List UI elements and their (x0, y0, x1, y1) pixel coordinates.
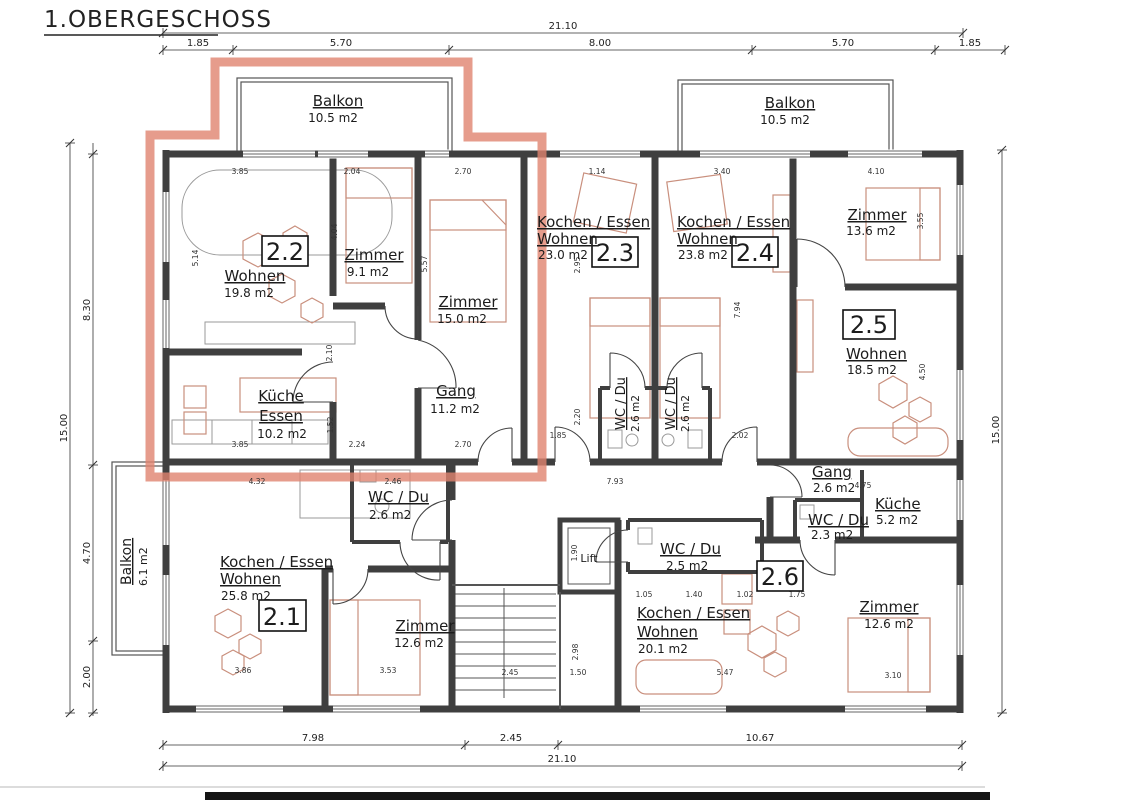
room-name2-ke-23: Wohnen (537, 230, 598, 248)
dim-bottom-total: 21.10 (548, 754, 577, 765)
dim-bottom-seg: 10.67 (746, 733, 775, 744)
dim-top-seg: 5.70 (832, 38, 854, 49)
room-name-wcdu-21: WC / Du (368, 488, 429, 506)
minor-dimension: 3.10 (885, 671, 902, 680)
minor-dimension: 4.75 (855, 481, 872, 490)
minor-dimension: 2.20 (573, 408, 582, 425)
room-name-gang-22: Gang (436, 382, 476, 400)
room-name-wcdu-25: WC / Du (808, 511, 869, 529)
window (760, 150, 810, 159)
unit-number-2-4: 2.4 (736, 239, 774, 267)
minor-dimension: 1.14 (589, 167, 606, 176)
dim-top-seg: 1.85 (187, 38, 209, 49)
room-area-zimmer-21: 12.6 m2 (394, 636, 444, 650)
minor-dimension: 3.53 (380, 666, 397, 675)
unit-number-2-2: 2.2 (266, 238, 304, 266)
room-area-wohnen-22: 19.8 m2 (224, 286, 274, 300)
dim-bottom-seg: 7.98 (302, 733, 324, 744)
room-area-ke-23: 23.0 m2 (538, 248, 588, 262)
dim-right-total: 15.00 (991, 416, 1002, 445)
room-name-zimmer-21: Zimmer (395, 617, 455, 635)
scan-black-bar (205, 792, 990, 800)
minor-dimension: 2.98 (571, 643, 580, 660)
room-area-wcdu-23: 2.6 m2 (630, 395, 642, 432)
room-area-balkon-21: 6.1 m2 (137, 547, 150, 586)
room-name-wcdu-23: WC / Du (614, 377, 629, 430)
minor-dimension: 7.94 (733, 301, 742, 318)
room-name-wohnen-22: Wohnen (225, 267, 286, 285)
floor-plan-page: 1.OBERGESCHOSS (0, 0, 1132, 800)
dim-top-total: 21.10 (549, 21, 578, 32)
minor-dimension: 2.10 (325, 344, 334, 361)
minor-dimension: 1.02 (737, 590, 754, 599)
minor-dimension: 4.10 (868, 167, 885, 176)
room-area-wcdu-24: 2.6 m2 (680, 395, 692, 432)
room-name2-kueche-22: Essen (259, 407, 303, 425)
room-area-balkon-22: 10.5 m2 (308, 111, 358, 125)
minor-dimension: 3.55 (916, 212, 925, 229)
dim-top-seg: 8.00 (589, 38, 611, 49)
minor-dimension: 3.85 (232, 167, 249, 176)
dim-bottom-seg: 2.45 (500, 733, 522, 744)
dim-left-seg: 8.30 (82, 299, 93, 321)
window (243, 150, 315, 159)
minor-dimension: 2.24 (349, 440, 366, 449)
dim-left-seg: 4.70 (82, 542, 93, 564)
room-area-gang-25: 2.6 m2 (813, 481, 855, 495)
room-name-ke-26: Kochen / Essen (637, 604, 750, 622)
minor-dimension: 1.52 (326, 416, 335, 433)
plants-2-6 (748, 611, 799, 677)
minor-dimension: 1.40 (686, 590, 703, 599)
room-name-balkon-21: Balkon (119, 538, 135, 585)
window (956, 585, 965, 655)
room-name-wcdu-26: WC / Du (660, 540, 721, 558)
room-name-ke-21: Kochen / Essen (220, 553, 333, 571)
room-area-balkon-right: 10.5 m2 (760, 113, 810, 127)
room-area-kueche-22: 10.2 m2 (257, 427, 307, 441)
unit-number-2-5: 2.5 (850, 311, 888, 339)
room-name2-ke-24: Wohnen (677, 230, 738, 248)
room-area-ke-24: 23.8 m2 (678, 248, 728, 262)
room-area-wcdu-25: 2.3 m2 (811, 528, 853, 542)
room-name-zimmer-26: Zimmer (859, 598, 919, 616)
minor-dimension: 1.50 (570, 668, 587, 677)
room-area-gang-22: 11.2 m2 (430, 402, 480, 416)
minor-dimension: 3.40 (714, 167, 731, 176)
window (956, 185, 965, 255)
room-area-wohnen-25: 18.5 m2 (847, 363, 897, 377)
room-name-wohnen-25: Wohnen (846, 345, 907, 363)
window (700, 150, 768, 159)
minor-dimension: 2.46 (385, 477, 402, 486)
minor-dimension: 2.04 (344, 167, 361, 176)
minor-dimension: 2.70 (455, 167, 472, 176)
unit-badges: 2.1 2.2 2.3 2.4 2.5 2.6 (259, 236, 895, 631)
minor-dimension: 3.85 (232, 440, 249, 449)
dim-left-seg: 2.00 (82, 666, 93, 688)
unit-number-2-6: 2.6 (761, 563, 799, 591)
minor-dimension: 5.57 (420, 255, 429, 272)
window (956, 480, 965, 520)
room-area-wcdu-21: 2.6 m2 (369, 508, 411, 522)
minor-dimension: 2.45 (502, 668, 519, 677)
window (845, 705, 926, 714)
room-area-zimmer-25: 13.6 m2 (846, 224, 896, 238)
minor-dimension: 5.47 (717, 668, 734, 677)
window (162, 192, 171, 262)
dim-top-seg: 5.70 (330, 38, 352, 49)
window (162, 480, 171, 545)
room-name-zimmer-25: Zimmer (847, 206, 907, 224)
window (640, 705, 726, 714)
room-name2-ke-21: Wohnen (220, 570, 281, 588)
room-name-gang-25: Gang (812, 463, 852, 481)
window (956, 370, 965, 440)
dim-left-total: 15.00 (59, 414, 70, 443)
window (162, 300, 171, 348)
room-name2-ke-26: Wohnen (637, 623, 698, 641)
room-area-wcdu-26: 2.5 m2 (666, 559, 708, 573)
floor-plan-drawing: 1.OBERGESCHOSS (0, 0, 1132, 800)
minor-dimension: 4.32 (249, 477, 266, 486)
room-name-zimmer15-22: Zimmer (438, 293, 498, 311)
room-area-zimmer-26: 12.6 m2 (864, 617, 914, 631)
minor-dimension: 1.90 (570, 544, 579, 561)
window (318, 150, 368, 159)
page-title: 1.OBERGESCHOSS (44, 7, 272, 33)
room-name-zimmer91-22: Zimmer (344, 246, 404, 264)
room-name-ke-23: Kochen / Essen (537, 213, 650, 231)
window (162, 575, 171, 645)
window (560, 150, 640, 159)
room-area-ke-21: 25.8 m2 (221, 589, 271, 603)
minor-dimension: 2.02 (732, 431, 749, 440)
room-area-kueche-25: 5.2 m2 (876, 513, 918, 527)
room-area-ke-26: 20.1 m2 (638, 642, 688, 656)
window (333, 705, 420, 714)
stairs (452, 588, 556, 698)
room-name-ke-24: Kochen / Essen (677, 213, 790, 231)
room-name-lift: Lift (580, 552, 598, 565)
room-name-wcdu-24: WC / Du (664, 377, 679, 430)
minor-dimension: 7.93 (607, 477, 624, 486)
minor-dimension: 1.85 (550, 431, 567, 440)
dim-top-seg: 1.85 (959, 38, 981, 49)
minor-dimension: 1.05 (636, 590, 653, 599)
window (196, 705, 283, 714)
unit-number-2-1: 2.1 (263, 603, 301, 631)
plants-2-5 (879, 376, 931, 444)
room-name-kueche-25: Küche (875, 495, 921, 513)
minor-dimension: 4.04 (330, 223, 339, 240)
room-name-balkon-22: Balkon (313, 92, 364, 110)
window (425, 150, 449, 159)
unit-number-2-3: 2.3 (596, 239, 634, 267)
room-area-zimmer15-22: 15.0 m2 (437, 312, 487, 326)
minor-dimension: 5.14 (191, 249, 200, 266)
room-name-balkon-right: Balkon (765, 94, 816, 112)
minor-dimension: 2.70 (455, 440, 472, 449)
room-name-kueche-22: Küche (258, 387, 304, 405)
minor-dimension: 4.50 (918, 363, 927, 380)
room-area-zimmer91-22: 9.1 m2 (347, 265, 389, 279)
minor-dimension: 3.86 (235, 666, 252, 675)
window (848, 150, 922, 159)
